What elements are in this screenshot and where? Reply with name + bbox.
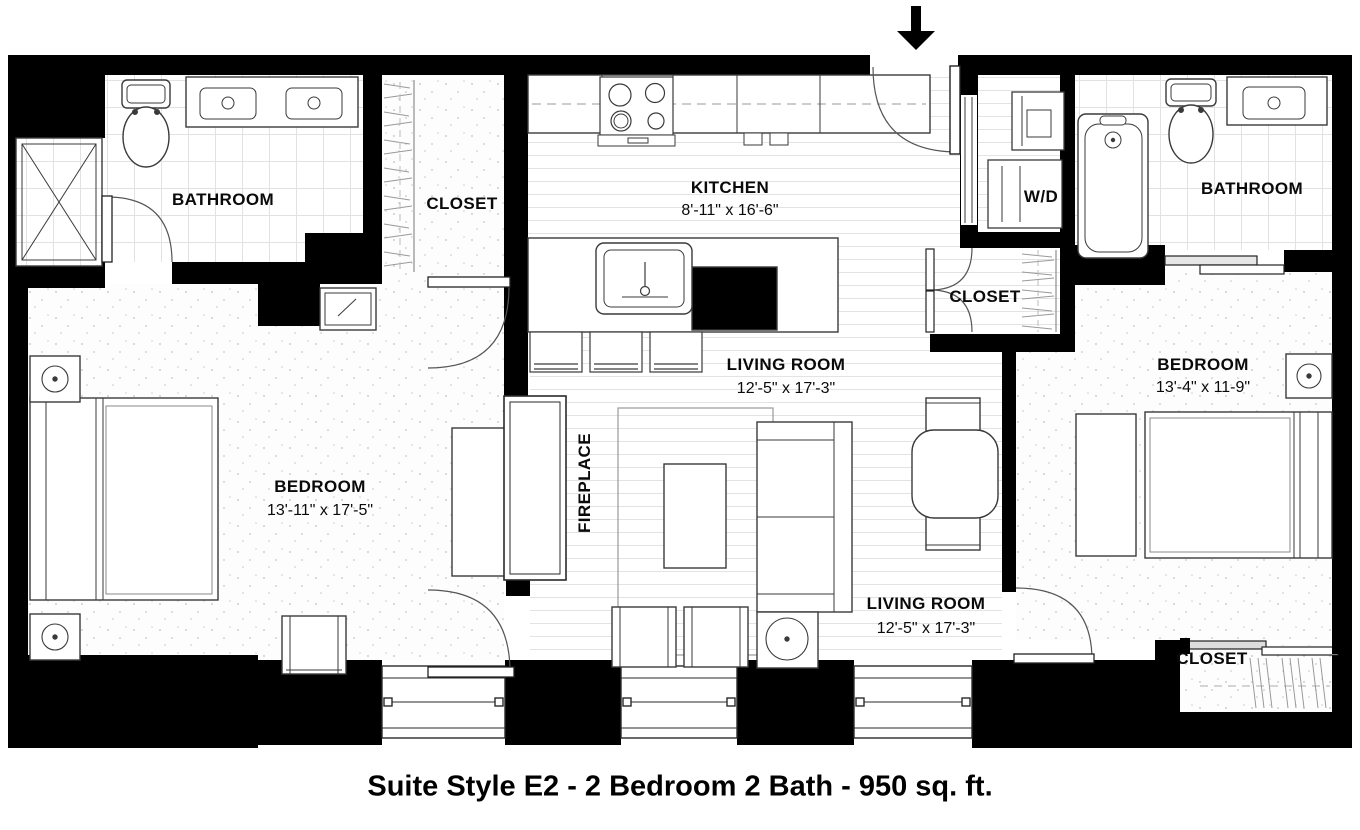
kitchen-counter: [528, 75, 930, 133]
window-2: [621, 666, 737, 738]
island-counter-black: [692, 267, 777, 330]
wd-label: W/D: [1024, 187, 1058, 207]
floor-plan-drawing: [0, 0, 1360, 830]
wall-shower-corner: [8, 55, 105, 138]
washer-icon: [1012, 92, 1064, 150]
wall-window-pier-3: [737, 660, 854, 745]
wall-living-bedroom-right: [1002, 350, 1016, 592]
living-room-lower-label: LIVING ROOM: [867, 594, 986, 614]
wall-bath-closet-divider: [363, 55, 382, 262]
floor-plan: BATHROOM CLOSET KITCHEN 8'-11" x 16'-6" …: [0, 0, 1360, 830]
bed-icon: [30, 398, 218, 600]
lounge-chair-icon: [684, 607, 748, 667]
window-3: [854, 666, 972, 738]
closet-left-label: CLOSET: [426, 194, 497, 214]
bedroom-left-dims: 13'-11" x 17'-5": [267, 502, 373, 520]
dresser-icon: [1076, 414, 1136, 556]
cooktop-icon: [598, 77, 675, 146]
closet-middle-door-leaf-bottom: [926, 291, 934, 332]
fireplace-icon: [504, 396, 566, 580]
island-sink-icon: [596, 243, 692, 314]
bedroom-left-door-leaf: [428, 667, 514, 677]
wd-door-opening: [961, 95, 977, 225]
wall-window-pier-4: [972, 660, 1180, 748]
kitchen-label: KITCHEN: [691, 178, 769, 198]
entry-door-leaf: [950, 66, 960, 154]
wall-right: [1332, 75, 1352, 712]
nightstand-icon: [1286, 354, 1332, 398]
wd-closet: [961, 92, 1064, 228]
toilet-icon: [122, 80, 170, 167]
kitchen-island: [528, 238, 838, 332]
wall-top-right: [958, 55, 1352, 75]
bathroom-right-label: BATHROOM: [1201, 179, 1303, 199]
kitchen-dims: 8'-11" x 16'-6": [681, 202, 778, 220]
closet-middle-label: CLOSET: [949, 287, 1020, 307]
wall-top-left: [8, 55, 870, 75]
bedroom-left-label: BEDROOM: [274, 477, 366, 497]
wall-kitchen-left: [504, 55, 528, 396]
vanity-icon: [1227, 77, 1327, 125]
living-room-upper-label: LIVING ROOM: [727, 355, 846, 375]
wall-fireplace-stub: [506, 580, 530, 596]
side-table-lamp-icon: [757, 612, 818, 668]
wall-mirror-icon: [320, 288, 376, 330]
wall-chase: [258, 284, 320, 326]
living-room-lower-dims: 12'-5" x 17'-3": [877, 620, 975, 638]
entry-arrow-icon: [897, 6, 935, 50]
wall-closet-middle-bottom: [930, 334, 1075, 352]
bedroom-right-dims: 13'-4" x 11-9": [1156, 379, 1250, 397]
sofa-icon: [757, 422, 852, 612]
living-room-upper-dims: 12'-5" x 17'-3": [737, 380, 835, 398]
toilet-icon: [1166, 79, 1216, 163]
nightstand-icon: [30, 614, 80, 660]
bathroom-left-label: BATHROOM: [172, 190, 274, 210]
nightstand-icon: [30, 356, 80, 402]
wall-bath-left-b: [172, 262, 382, 284]
wall-bathroom-right-bottom-b: [1284, 250, 1332, 272]
closet-middle-door-leaf-top: [926, 249, 934, 290]
lounge-chair-icon: [612, 607, 676, 667]
coffee-table-icon: [664, 464, 726, 568]
double-vanity-icon: [186, 77, 358, 127]
bar-stools: [530, 332, 702, 372]
fireplace-label: FIREPLACE: [575, 433, 595, 533]
wall-bottom-right: [1155, 712, 1352, 748]
wall-window-pier-2: [505, 660, 621, 745]
wall-wd-bottom: [960, 232, 1075, 248]
bathtub-icon: [1078, 114, 1148, 258]
bedroom-chair-icon: [282, 616, 346, 674]
bed-icon: [1145, 412, 1332, 558]
bedroom-right-label: BEDROOM: [1157, 355, 1249, 375]
closet-left-door-leaf: [428, 277, 510, 287]
bathroom-left-door-leaf: [102, 196, 112, 262]
shower-icon: [16, 138, 102, 266]
bedroom-right-door-leaf: [1014, 654, 1094, 663]
closet-bottom-right-label: CLOSET: [1176, 649, 1247, 669]
plan-title: Suite Style E2 - 2 Bedroom 2 Bath - 950 …: [367, 771, 992, 804]
wall-bottom-left-block: [8, 655, 258, 748]
wall-step: [305, 233, 363, 262]
